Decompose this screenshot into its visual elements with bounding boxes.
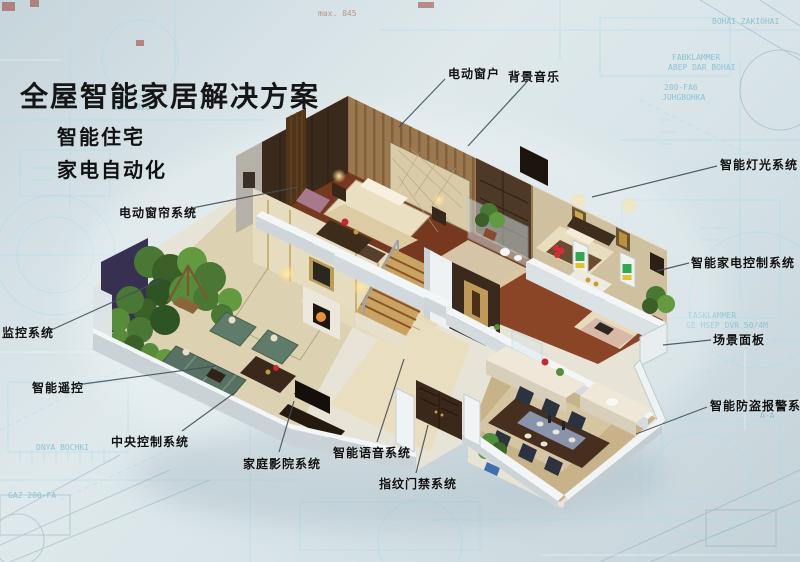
artwork-figure bbox=[472, 290, 480, 318]
food-plate bbox=[594, 282, 599, 287]
bg-text: GAZ 200-FA bbox=[8, 491, 56, 500]
blueprint-red-marks bbox=[2, 0, 434, 46]
bg-text: max. 845 bbox=[318, 9, 357, 18]
washbasin bbox=[514, 255, 522, 261]
red-flowers bbox=[342, 219, 349, 226]
gold-decor bbox=[354, 230, 359, 235]
callout-monitoring-system: 监控系统 bbox=[2, 324, 54, 341]
subtitle-line-1: 智能住宅 bbox=[57, 122, 167, 155]
callout-smart-voice-system: 智能语音系统 bbox=[333, 444, 411, 461]
table-lamp-glow bbox=[432, 193, 446, 207]
fire-glow bbox=[316, 312, 326, 322]
vase-greens bbox=[494, 324, 500, 330]
counter-flowers bbox=[542, 359, 549, 366]
bg-text: BOHAI ZAKIOHAI bbox=[712, 17, 780, 26]
table-lamp-glow bbox=[332, 169, 346, 183]
table-flower bbox=[273, 365, 279, 371]
appliance-yellow-panel bbox=[576, 263, 585, 268]
callout-background-music: 背景音乐 bbox=[508, 68, 560, 85]
bg-text: ABEP DAR BOHAI bbox=[668, 63, 736, 72]
poster-subtitle: 智能住宅 家电自动化 bbox=[57, 122, 167, 188]
callout-scene-panel: 场景面板 bbox=[713, 331, 765, 348]
callout-electric-curtain-system: 电动窗帘系统 bbox=[119, 204, 197, 221]
callout-central-control-system: 中央控制系统 bbox=[111, 433, 189, 450]
callout-home-theater-system: 家庭影院系统 bbox=[243, 455, 321, 472]
door-pillar bbox=[396, 388, 414, 452]
callout-smart-lighting-system: 智能灯光系统 bbox=[720, 156, 798, 173]
wall-picture bbox=[243, 172, 255, 188]
callout-electric-window: 电动窗户 bbox=[448, 65, 500, 82]
callout-appliance-control-system: 智能家电控制系统 bbox=[691, 254, 795, 271]
door-knob bbox=[435, 411, 438, 414]
candelabra bbox=[562, 421, 565, 430]
subtitle-line-2: 家电自动化 bbox=[57, 155, 167, 188]
appliance-green-panel bbox=[576, 252, 585, 261]
throw-pillow bbox=[183, 349, 190, 356]
table-decor bbox=[266, 370, 271, 375]
bg-text: JUHGBOHKA bbox=[662, 93, 706, 102]
appliance-green-panel bbox=[623, 264, 632, 273]
counter-greens bbox=[556, 368, 564, 376]
appliance-yellow-panel bbox=[623, 275, 632, 280]
poster-title: 全屋智能家居解决方案 bbox=[20, 75, 320, 115]
door-knob bbox=[441, 414, 444, 417]
callout-burglar-alarm-system: 智能防盗报警系统 bbox=[710, 397, 800, 414]
door-pillar bbox=[464, 394, 480, 446]
callout-fingerprint-access-system: 指纹门禁系统 bbox=[379, 475, 457, 492]
food-plate bbox=[586, 278, 591, 283]
toilet bbox=[500, 248, 510, 256]
sink bbox=[606, 398, 618, 406]
sconce-glow bbox=[277, 264, 297, 284]
bg-text: FABKLAMMER bbox=[672, 53, 720, 62]
throw-pillow bbox=[271, 335, 278, 342]
callout-smart-remote-control: 智能遥控 bbox=[32, 379, 84, 396]
throw-pillow bbox=[229, 317, 236, 324]
bg-text: 200-FA6 bbox=[664, 83, 698, 92]
poster: max. 845 min. 820 BOHAI ZAKIOHAI FABKLAM… bbox=[0, 0, 800, 562]
bg-text: DNYA BOCHKI bbox=[36, 443, 89, 452]
